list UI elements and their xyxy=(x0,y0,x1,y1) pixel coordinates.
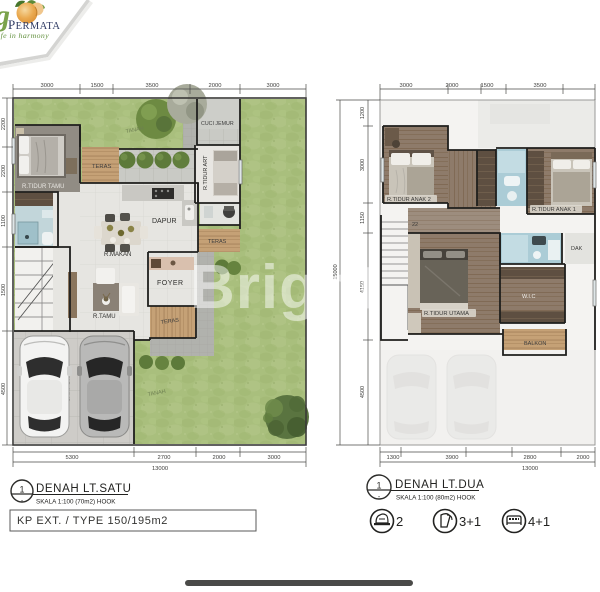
svg-text:DENAH LT.DUA: DENAH LT.DUA xyxy=(395,479,484,491)
svg-text:SKALA 1:100 (80m2) HOOK: SKALA 1:100 (80m2) HOOK xyxy=(396,495,476,502)
svg-text:KP EXT. / TYPE 150/195m2: KP EXT. / TYPE 150/195m2 xyxy=(17,515,168,527)
svg-text:3+1: 3+1 xyxy=(459,514,481,529)
svg-text:W.I.C: W.I.C xyxy=(522,294,535,300)
svg-text:13000: 13000 xyxy=(522,466,538,472)
svg-text:2700: 2700 xyxy=(158,455,171,461)
svg-text:R.TAMU: R.TAMU xyxy=(93,314,116,320)
svg-text:4+1: 4+1 xyxy=(528,514,550,529)
svg-text:3500: 3500 xyxy=(146,83,159,89)
svg-text:1150: 1150 xyxy=(360,212,366,224)
svg-text:TERAS: TERAS xyxy=(92,164,111,170)
svg-text:3500: 3500 xyxy=(534,83,547,89)
svg-text:DENAH LT.SATU: DENAH LT.SATU xyxy=(36,483,132,495)
svg-text:DAK: DAK xyxy=(571,246,583,252)
svg-text:FOYER: FOYER xyxy=(157,280,184,287)
svg-text:22: 22 xyxy=(412,222,418,228)
svg-text:2000: 2000 xyxy=(209,83,222,89)
svg-text:1300: 1300 xyxy=(387,455,400,461)
svg-text:2000: 2000 xyxy=(577,455,590,461)
svg-text:2000: 2000 xyxy=(213,455,226,461)
svg-text:R.TIDUR ANAK 1: R.TIDUR ANAK 1 xyxy=(532,207,576,213)
svg-text:CUCI JEMUR: CUCI JEMUR xyxy=(201,121,234,127)
svg-text:3000: 3000 xyxy=(268,455,281,461)
svg-text:13000: 13000 xyxy=(152,466,168,472)
svg-text:1100: 1100 xyxy=(1,215,7,227)
svg-text:4500: 4500 xyxy=(1,383,7,395)
svg-text:R.MAKAN: R.MAKAN xyxy=(104,252,131,258)
svg-text:DAPUR: DAPUR xyxy=(152,218,177,225)
svg-text:1500: 1500 xyxy=(1,284,7,296)
svg-text:3000: 3000 xyxy=(267,83,280,89)
svg-text:2: 2 xyxy=(396,514,403,529)
svg-text:2800: 2800 xyxy=(524,455,537,461)
svg-text:R.TIDUR ART: R.TIDUR ART xyxy=(203,155,209,190)
svg-text:3000: 3000 xyxy=(360,159,366,171)
svg-text:TERAS: TERAS xyxy=(208,239,227,245)
svg-text:SKALA 1:100 (70m2) HOOK: SKALA 1:100 (70m2) HOOK xyxy=(36,499,116,506)
svg-text:3000: 3000 xyxy=(400,83,413,89)
svg-text:3000: 3000 xyxy=(41,83,54,89)
svg-text:1: 1 xyxy=(376,481,381,491)
svg-text:2200: 2200 xyxy=(1,165,7,177)
svg-text:R.TIDUR TAMU: R.TIDUR TAMU xyxy=(22,184,64,190)
svg-text:1200: 1200 xyxy=(360,107,366,119)
svg-text:R.TIDUR UTAMA: R.TIDUR UTAMA xyxy=(424,311,469,317)
svg-text:Bright: Bright xyxy=(190,253,379,322)
svg-text:1: 1 xyxy=(19,485,24,495)
svg-text:BALKON: BALKON xyxy=(524,341,546,347)
svg-text:4500: 4500 xyxy=(360,386,366,398)
svg-text:5300: 5300 xyxy=(66,455,79,461)
svg-text:3900: 3900 xyxy=(446,455,459,461)
svg-text:1500: 1500 xyxy=(91,83,104,89)
svg-text:2200: 2200 xyxy=(1,118,7,130)
svg-text:2000: 2000 xyxy=(446,83,459,89)
svg-text:ife in harmony: ife in harmony xyxy=(0,31,49,40)
svg-text:1500: 1500 xyxy=(481,83,494,89)
